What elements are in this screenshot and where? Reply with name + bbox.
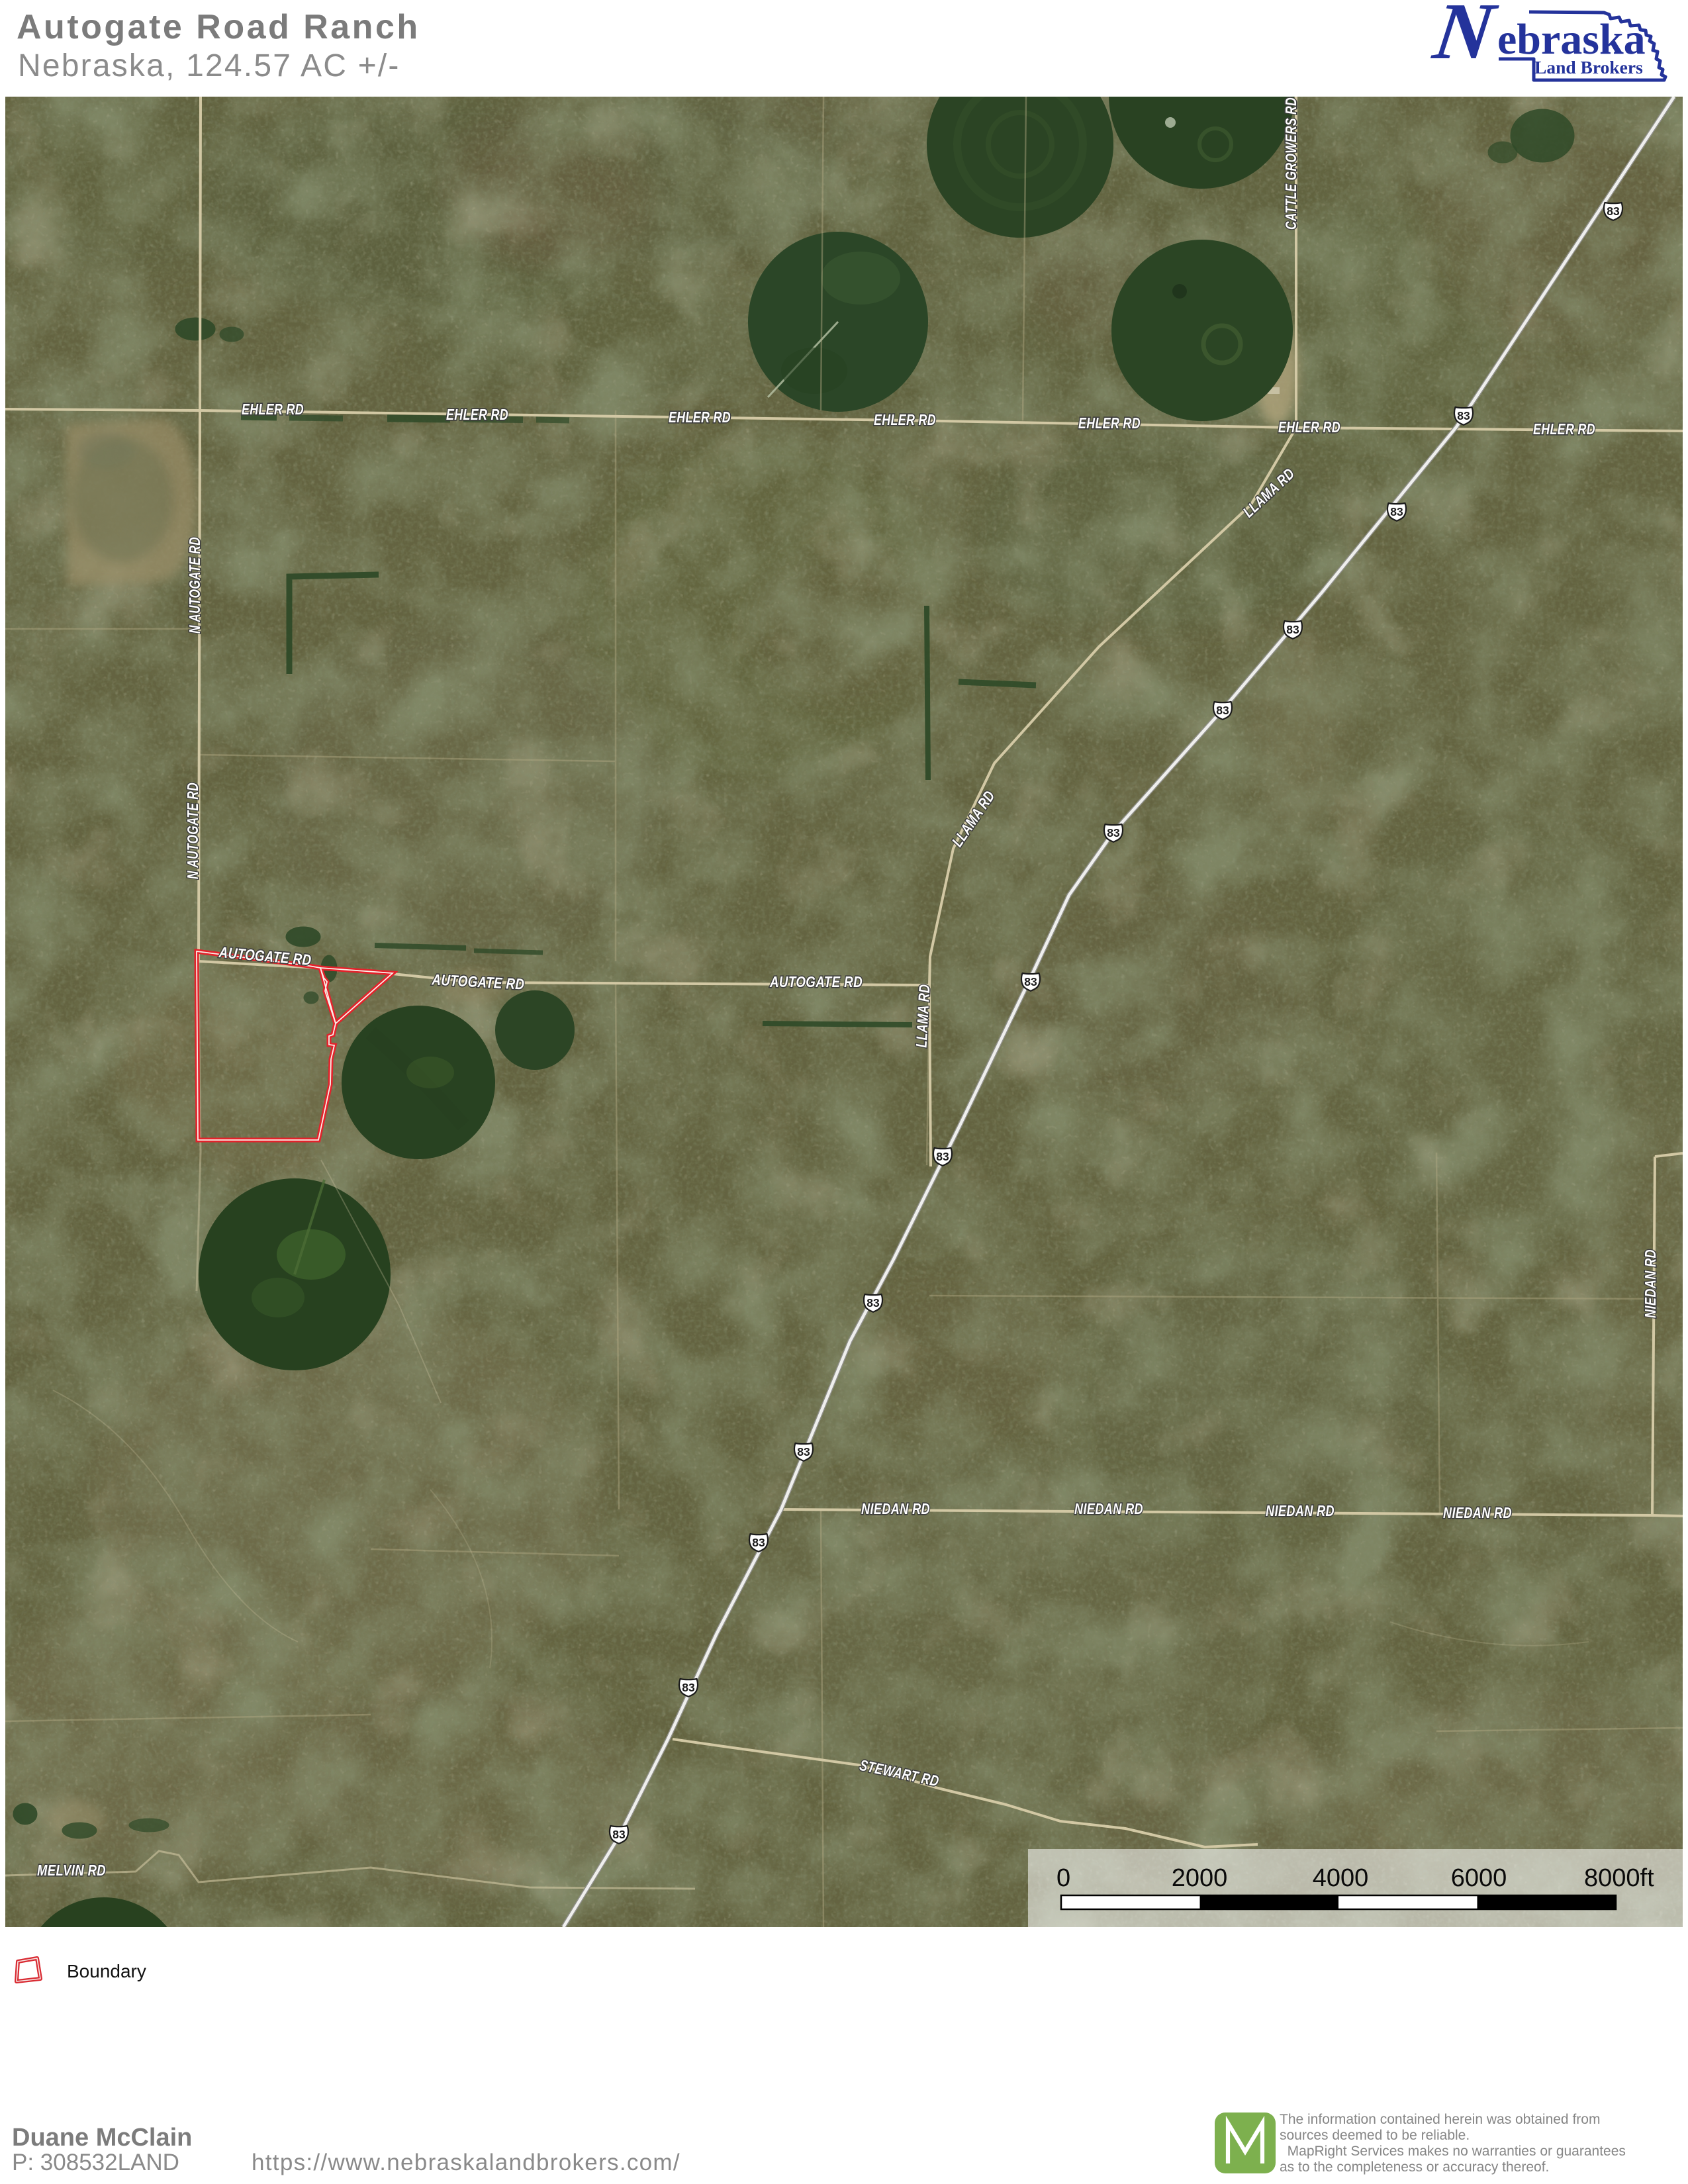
svg-text:NIEDAN RD: NIEDAN RD: [1642, 1249, 1659, 1318]
svg-text:CATTLE GROWERS RD: CATTLE GROWERS RD: [1282, 97, 1299, 230]
svg-text:6000: 6000: [1451, 1864, 1507, 1892]
svg-text:NIEDAN RD: NIEDAN RD: [1266, 1502, 1335, 1519]
svg-text:8000ft: 8000ft: [1584, 1864, 1654, 1892]
svg-text:4000: 4000: [1313, 1864, 1369, 1892]
svg-text:EHLER RD: EHLER RD: [1533, 420, 1595, 438]
svg-text:EHLER RD: EHLER RD: [669, 408, 731, 426]
svg-text:AUTOGATE RD: AUTOGATE RD: [769, 973, 863, 990]
svg-text:N AUTOGATE RD: N AUTOGATE RD: [186, 537, 203, 634]
svg-text:EHLER RD: EHLER RD: [1078, 414, 1141, 432]
svg-text:NIEDAN RD: NIEDAN RD: [1443, 1504, 1512, 1521]
svg-text:NIEDAN RD: NIEDAN RD: [1074, 1500, 1143, 1517]
svg-text:2000: 2000: [1172, 1864, 1228, 1892]
svg-text:EHLER RD: EHLER RD: [1278, 418, 1340, 436]
svg-text:Land Brokers: Land Brokers: [1534, 57, 1643, 77]
svg-text:N AUTOGATE RD: N AUTOGATE RD: [184, 783, 201, 879]
svg-text:EHLER RD: EHLER RD: [242, 401, 304, 418]
svg-text:LLAMA RD: LLAMA RD: [913, 984, 933, 1048]
svg-text:EHLER RD: EHLER RD: [874, 411, 936, 428]
svg-text:N: N: [1430, 0, 1503, 76]
svg-text:EHLER RD: EHLER RD: [446, 406, 508, 423]
svg-text:MELVIN RD: MELVIN RD: [37, 1862, 106, 1879]
svg-text:0: 0: [1056, 1864, 1070, 1892]
svg-text:NIEDAN RD: NIEDAN RD: [861, 1500, 930, 1517]
